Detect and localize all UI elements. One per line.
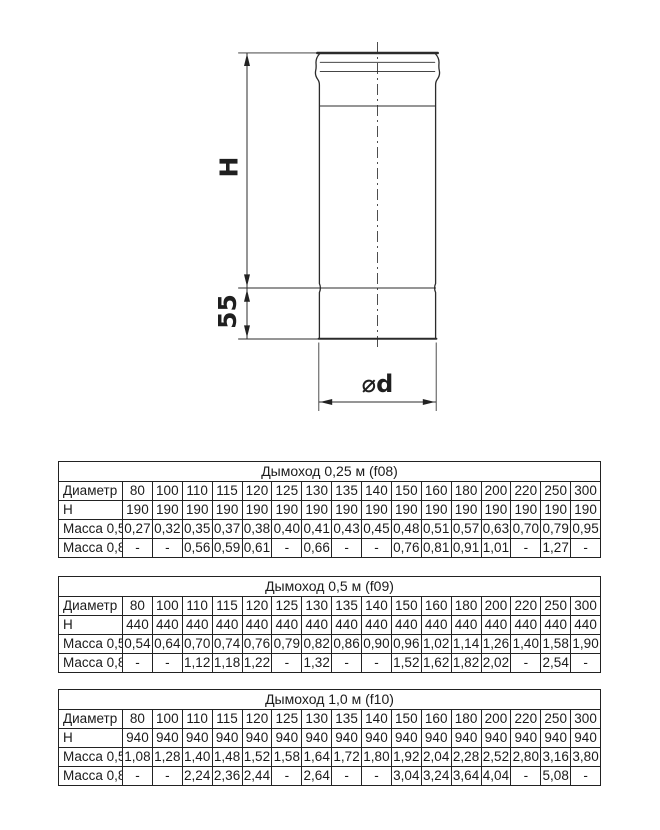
value-cell: 1,62 [421, 654, 451, 673]
value-cell: 120 [242, 482, 272, 501]
value-cell: 940 [272, 729, 302, 748]
value-cell: - [152, 654, 182, 673]
value-cell: - [571, 654, 601, 673]
value-cell: 0,63 [481, 520, 511, 539]
value-cell: 940 [511, 729, 541, 748]
arrow-up-icon [244, 290, 250, 302]
value-cell: 1,58 [272, 748, 302, 767]
value-cell: 0,27 [123, 520, 153, 539]
value-cell: 0,61 [242, 539, 272, 558]
value-cell: 150 [391, 597, 421, 616]
value-cell: 440 [242, 616, 272, 635]
value-cell: 0,90 [362, 635, 392, 654]
value-cell: 0,59 [212, 539, 242, 558]
value-cell: 190 [182, 501, 212, 520]
value-cell: 190 [242, 501, 272, 520]
value-cell: 1,32 [302, 654, 332, 673]
table-row: Масса 0,50,540,640,700,740,760,790,820,8… [59, 635, 601, 654]
value-cell: 1,80 [362, 748, 392, 767]
value-cell: 0,41 [302, 520, 332, 539]
value-cell: 190 [362, 501, 392, 520]
value-cell: 940 [302, 729, 332, 748]
value-cell: 3,64 [451, 767, 481, 786]
value-cell: 940 [362, 729, 392, 748]
value-cell: 940 [451, 729, 481, 748]
value-cell: 190 [571, 501, 601, 520]
value-cell: 0,79 [272, 635, 302, 654]
value-cell: 180 [451, 597, 481, 616]
dimension-h-label: H [215, 157, 244, 178]
value-cell: 440 [212, 616, 242, 635]
value-cell: 0,35 [182, 520, 212, 539]
value-cell: 0,96 [391, 635, 421, 654]
value-cell: 125 [272, 482, 302, 501]
value-cell: 1,27 [541, 539, 571, 558]
table-row: Масса 0,8--0,560,590,61-0,66--0,760,810,… [59, 539, 601, 558]
value-cell: 0,45 [362, 520, 392, 539]
value-cell: 2,04 [421, 748, 451, 767]
value-cell: 180 [451, 482, 481, 501]
value-cell: 130 [302, 710, 332, 729]
value-cell: - [272, 767, 302, 786]
arrow-up-icon [244, 54, 250, 66]
value-cell: 1,52 [391, 654, 421, 673]
value-cell: 160 [421, 597, 451, 616]
value-cell: 1,82 [451, 654, 481, 673]
value-cell: 0,95 [571, 520, 601, 539]
value-cell: 940 [421, 729, 451, 748]
value-cell: 940 [152, 729, 182, 748]
value-cell: 1,92 [391, 748, 421, 767]
value-cell: 140 [362, 482, 392, 501]
value-cell: 200 [481, 482, 511, 501]
value-cell: 4,04 [481, 767, 511, 786]
dimension-diameter: ⌀d [319, 343, 436, 412]
value-cell: 1,40 [182, 748, 212, 767]
value-cell: 1,22 [242, 654, 272, 673]
value-cell: 120 [242, 710, 272, 729]
value-cell: - [511, 539, 541, 558]
value-cell: 0,66 [302, 539, 332, 558]
spec-table: Дымоход 1,0 м (f10) Диаметр8010011011512… [58, 689, 601, 786]
value-cell: - [332, 539, 362, 558]
value-cell: 220 [511, 597, 541, 616]
value-cell: - [123, 654, 153, 673]
row-label: Диаметр [59, 710, 123, 729]
pipe-left-edge [315, 54, 320, 338]
dimension-socket-55: 55 [213, 288, 250, 339]
row-label: Масса 0,8 [59, 654, 123, 673]
value-cell: 190 [123, 501, 153, 520]
value-cell: - [272, 539, 302, 558]
table-row: Масса 0,50,270,320,350,370,380,400,410,4… [59, 520, 601, 539]
table-row: Масса 0,8--2,242,362,44-2,64--3,043,243,… [59, 767, 601, 786]
value-cell: 2,64 [302, 767, 332, 786]
value-cell: 3,24 [421, 767, 451, 786]
value-cell: 190 [212, 501, 242, 520]
value-cell: 100 [152, 597, 182, 616]
value-cell: 140 [362, 597, 392, 616]
row-label: Диаметр [59, 597, 123, 616]
value-cell: 0,64 [152, 635, 182, 654]
row-label: Масса 0,5 [59, 748, 123, 767]
value-cell: 1,26 [481, 635, 511, 654]
value-cell: 0,86 [332, 635, 362, 654]
value-cell: 140 [362, 710, 392, 729]
value-cell: 440 [421, 616, 451, 635]
value-cell: 440 [152, 616, 182, 635]
value-cell: 440 [362, 616, 392, 635]
value-cell: 2,44 [242, 767, 272, 786]
value-cell: 0,81 [421, 539, 451, 558]
value-cell: - [272, 654, 302, 673]
value-cell: - [332, 767, 362, 786]
row-label: Н [59, 616, 123, 635]
value-cell: 0,54 [123, 635, 153, 654]
value-cell: 2,52 [481, 748, 511, 767]
value-cell: 940 [571, 729, 601, 748]
arrow-left-icon [320, 399, 332, 405]
value-cell: - [123, 767, 153, 786]
value-cell: 940 [242, 729, 272, 748]
value-cell: 440 [451, 616, 481, 635]
value-cell: 0,70 [511, 520, 541, 539]
table-row: Масса 0,8--1,121,181,22-1,32--1,521,621,… [59, 654, 601, 673]
value-cell: 0,76 [391, 539, 421, 558]
value-cell: 115 [212, 482, 242, 501]
value-cell: - [152, 767, 182, 786]
value-cell: - [362, 654, 392, 673]
value-cell: 2,02 [481, 654, 511, 673]
value-cell: 0,43 [332, 520, 362, 539]
value-cell: 300 [571, 710, 601, 729]
value-cell: - [332, 654, 362, 673]
table-row: Диаметр801001101151201251301351401501601… [59, 597, 601, 616]
table-title: Дымоход 1,0 м (f10) [59, 690, 601, 710]
value-cell: 125 [272, 710, 302, 729]
value-cell: 0,57 [451, 520, 481, 539]
value-cell: 160 [421, 482, 451, 501]
value-cell: 940 [123, 729, 153, 748]
value-cell: 440 [272, 616, 302, 635]
value-cell: 150 [391, 710, 421, 729]
table-title-row: Дымоход 1,0 м (f10) [59, 690, 601, 710]
value-cell: 2,54 [541, 654, 571, 673]
value-cell: 190 [391, 501, 421, 520]
value-cell: 1,90 [571, 635, 601, 654]
value-cell: 0,82 [302, 635, 332, 654]
value-cell: 440 [481, 616, 511, 635]
table-row: Диаметр801001101151201251301351401501601… [59, 710, 601, 729]
row-label: Н [59, 501, 123, 520]
value-cell: - [362, 767, 392, 786]
value-cell: 300 [571, 482, 601, 501]
value-cell: 440 [332, 616, 362, 635]
pipe-right-edge [435, 54, 440, 338]
table-title-row: Дымоход 0,25 м (f08) [59, 462, 601, 482]
value-cell: 190 [332, 501, 362, 520]
value-cell: 250 [541, 482, 571, 501]
value-cell: 200 [481, 710, 511, 729]
value-cell: 940 [332, 729, 362, 748]
value-cell: 440 [571, 616, 601, 635]
spec-tables: Дымоход 0,25 м (f08) Диаметр801001101151… [58, 461, 601, 786]
value-cell: 190 [421, 501, 451, 520]
value-cell: 1,52 [242, 748, 272, 767]
value-cell: 2,36 [212, 767, 242, 786]
value-cell: 940 [481, 729, 511, 748]
value-cell: 115 [212, 597, 242, 616]
value-cell: 940 [182, 729, 212, 748]
value-cell: 0,40 [272, 520, 302, 539]
row-label: Масса 0,8 [59, 767, 123, 786]
pipe-technical-drawing: H 55 ⌀d [0, 0, 660, 450]
value-cell: 190 [481, 501, 511, 520]
value-cell: 190 [272, 501, 302, 520]
value-cell: - [511, 654, 541, 673]
arrow-right-icon [423, 399, 435, 405]
value-cell: 110 [182, 597, 212, 616]
table-row: Масса 0,51,081,281,401,481,521,581,641,7… [59, 748, 601, 767]
table-row: Н440440440440440440440440440440440440440… [59, 616, 601, 635]
value-cell: - [571, 767, 601, 786]
value-cell: 440 [541, 616, 571, 635]
value-cell: 1,40 [511, 635, 541, 654]
row-label: Масса 0,5 [59, 635, 123, 654]
value-cell: 440 [302, 616, 332, 635]
table-title-row: Дымоход 0,5 м (f09) [59, 577, 601, 597]
value-cell: 80 [123, 482, 153, 501]
value-cell: 190 [302, 501, 332, 520]
value-cell: 250 [541, 597, 571, 616]
value-cell: - [511, 767, 541, 786]
value-cell: 0,91 [451, 539, 481, 558]
value-cell: 0,37 [212, 520, 242, 539]
value-cell: 440 [123, 616, 153, 635]
value-cell: 2,24 [182, 767, 212, 786]
value-cell: 3,16 [541, 748, 571, 767]
value-cell: 150 [391, 482, 421, 501]
value-cell: 1,64 [302, 748, 332, 767]
value-cell: 300 [571, 597, 601, 616]
value-cell: 120 [242, 597, 272, 616]
value-cell: 3,04 [391, 767, 421, 786]
value-cell: 1,28 [152, 748, 182, 767]
value-cell: 190 [541, 501, 571, 520]
value-cell: 1,72 [332, 748, 362, 767]
table-row: Диаметр801001101151201251301351401501601… [59, 482, 601, 501]
value-cell: 190 [511, 501, 541, 520]
value-cell: 1,18 [212, 654, 242, 673]
table-row: Н940940940940940940940940940940940940940… [59, 729, 601, 748]
value-cell: - [152, 539, 182, 558]
value-cell: 1,58 [541, 635, 571, 654]
value-cell: 110 [182, 482, 212, 501]
value-cell: 940 [541, 729, 571, 748]
arrow-down-icon [244, 274, 250, 286]
spec-table: Дымоход 0,25 м (f08) Диаметр801001101151… [58, 461, 601, 558]
value-cell: 80 [123, 710, 153, 729]
value-cell: 100 [152, 482, 182, 501]
value-cell: 1,14 [451, 635, 481, 654]
value-cell: 130 [302, 597, 332, 616]
value-cell: 220 [511, 482, 541, 501]
value-cell: 125 [272, 597, 302, 616]
value-cell: 2,28 [451, 748, 481, 767]
value-cell: 130 [302, 482, 332, 501]
dimension-diameter-label: ⌀d [362, 370, 394, 398]
pipe-spec-sheet: H 55 ⌀d Дымоход 0,25 м (f08) Диа [0, 0, 660, 830]
arrow-down-icon [244, 325, 250, 337]
value-cell: 0,56 [182, 539, 212, 558]
value-cell: 250 [541, 710, 571, 729]
value-cell: 440 [182, 616, 212, 635]
row-label: Диаметр [59, 482, 123, 501]
value-cell: 0,48 [391, 520, 421, 539]
table-title: Дымоход 0,5 м (f09) [59, 577, 601, 597]
value-cell: 1,01 [481, 539, 511, 558]
value-cell: 1,08 [123, 748, 153, 767]
value-cell: 115 [212, 710, 242, 729]
value-cell: 100 [152, 710, 182, 729]
value-cell: 0,51 [421, 520, 451, 539]
value-cell: 200 [481, 597, 511, 616]
value-cell: 0,74 [212, 635, 242, 654]
value-cell: 190 [451, 501, 481, 520]
value-cell: 190 [152, 501, 182, 520]
spec-table: Дымоход 0,5 м (f09) Диаметр8010011011512… [58, 576, 601, 673]
value-cell: 440 [511, 616, 541, 635]
row-label: Масса 0,5 [59, 520, 123, 539]
value-cell: - [362, 539, 392, 558]
value-cell: 0,32 [152, 520, 182, 539]
value-cell: 135 [332, 597, 362, 616]
value-cell: 220 [511, 710, 541, 729]
value-cell: 940 [212, 729, 242, 748]
value-cell: - [123, 539, 153, 558]
value-cell: 3,80 [571, 748, 601, 767]
value-cell: 135 [332, 482, 362, 501]
value-cell: 440 [391, 616, 421, 635]
value-cell: 1,48 [212, 748, 242, 767]
value-cell: 110 [182, 710, 212, 729]
value-cell: 80 [123, 597, 153, 616]
value-cell: 180 [451, 710, 481, 729]
value-cell: 0,76 [242, 635, 272, 654]
dimension-h: H [215, 53, 251, 288]
value-cell: 1,02 [421, 635, 451, 654]
value-cell: - [571, 539, 601, 558]
value-cell: 135 [332, 710, 362, 729]
pipe-outline [239, 53, 440, 339]
value-cell: 160 [421, 710, 451, 729]
row-label: Масса 0,8 [59, 539, 123, 558]
value-cell: 940 [391, 729, 421, 748]
value-cell: 1,12 [182, 654, 212, 673]
value-cell: 2,80 [511, 748, 541, 767]
value-cell: 5,08 [541, 767, 571, 786]
table-row: Н190190190190190190190190190190190190190… [59, 501, 601, 520]
table-title: Дымоход 0,25 м (f08) [59, 462, 601, 482]
value-cell: 0,70 [182, 635, 212, 654]
dimension-socket-label: 55 [213, 294, 242, 329]
value-cell: 0,38 [242, 520, 272, 539]
row-label: Н [59, 729, 123, 748]
value-cell: 0,79 [541, 520, 571, 539]
